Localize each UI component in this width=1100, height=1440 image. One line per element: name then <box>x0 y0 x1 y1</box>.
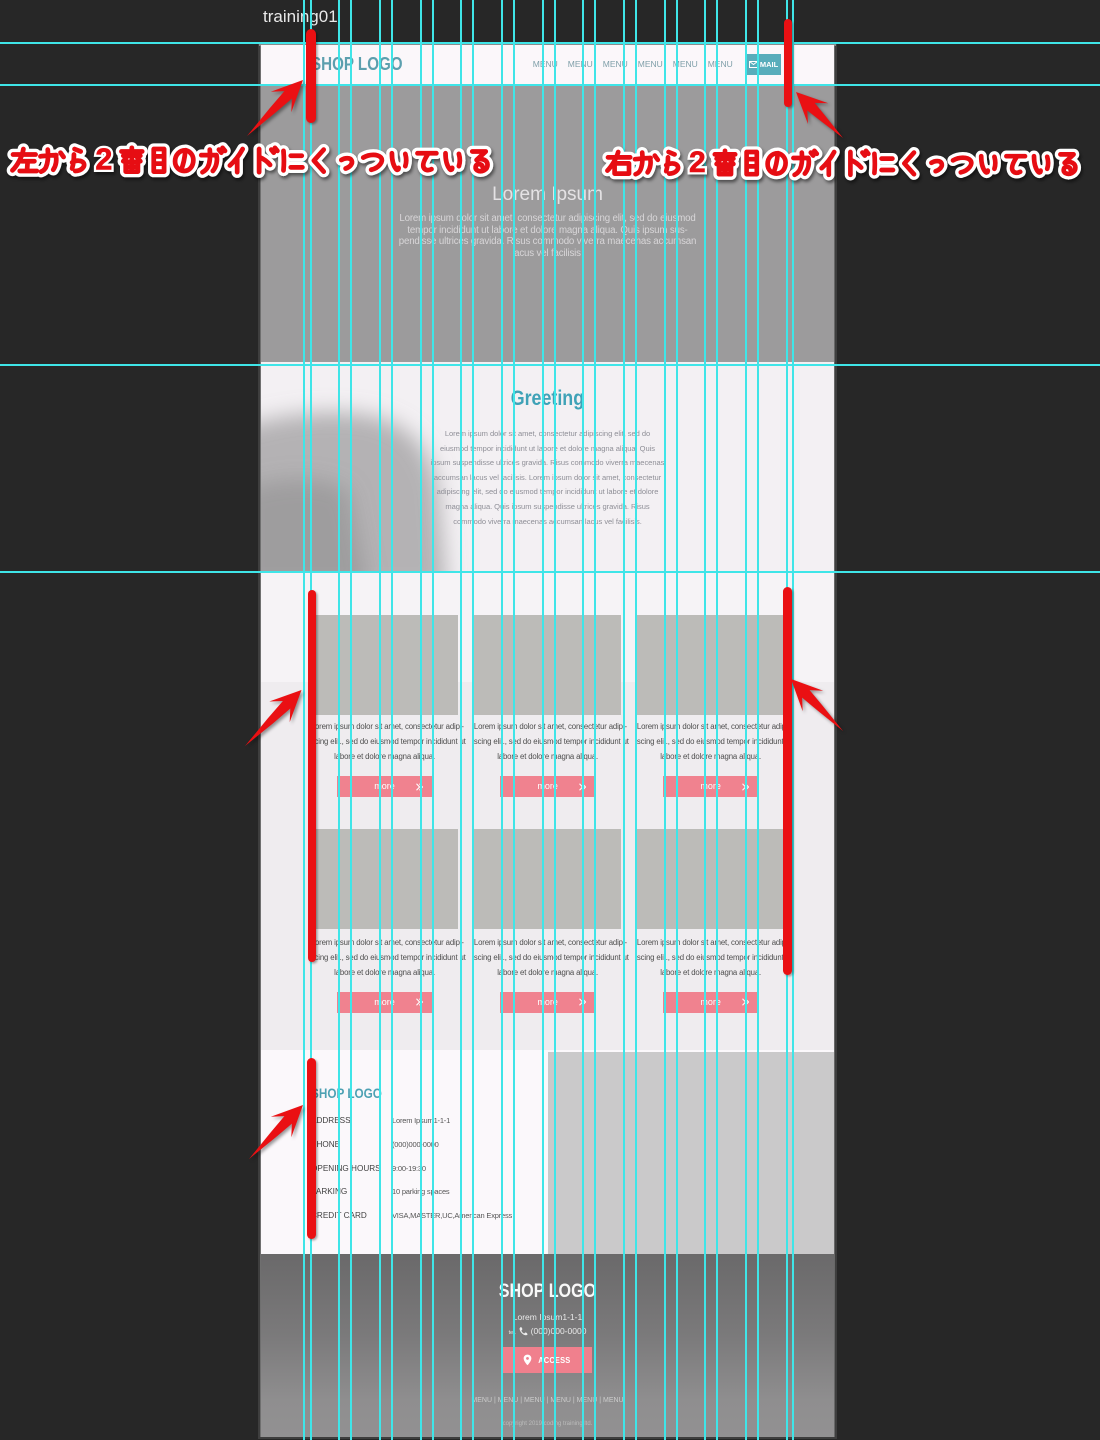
svg-text:2: 2 <box>95 142 112 176</box>
svg-text:2: 2 <box>689 146 706 179</box>
